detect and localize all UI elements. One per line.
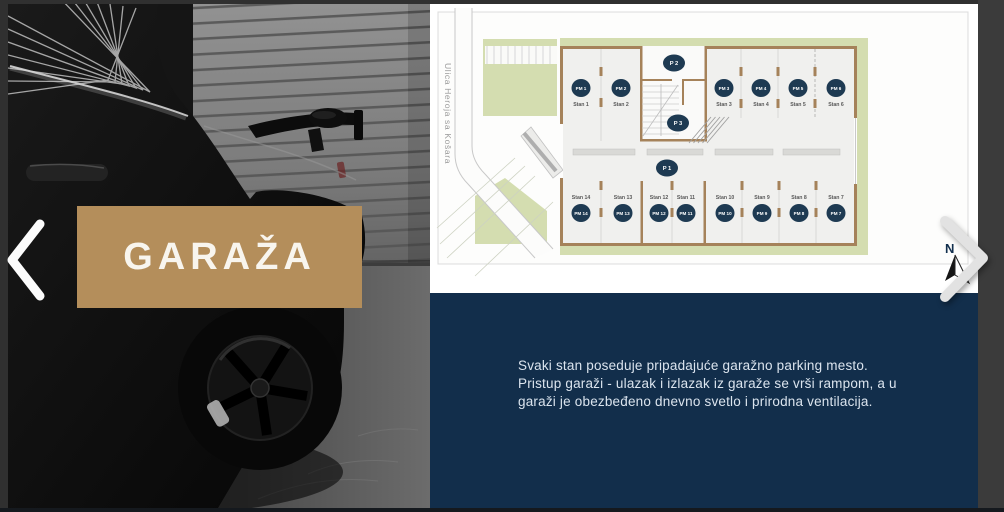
svg-text:Stan 14: Stan 14	[572, 195, 591, 201]
window-edge-bottom	[0, 508, 1004, 512]
svg-text:Stan 3: Stan 3	[716, 102, 732, 108]
svg-text:PM 12: PM 12	[652, 211, 666, 216]
zone-circle-p1: P 1	[656, 160, 678, 177]
prev-slide-button[interactable]	[4, 216, 52, 304]
chevron-left-icon[interactable]	[12, 224, 40, 296]
info-panel: Svaki stan poseduje pripadajuće garažno …	[430, 293, 978, 508]
svg-text:Stan 12: Stan 12	[650, 195, 669, 201]
svg-text:PM 1: PM 1	[576, 86, 587, 91]
svg-text:Stan 8: Stan 8	[791, 195, 807, 201]
north-label: N	[945, 241, 954, 256]
parking-spot: PM 1 Stan 1	[572, 79, 591, 108]
parking-spot: PM 4 Stan 4	[752, 79, 771, 108]
door-handle	[26, 164, 108, 181]
svg-text:PM 8: PM 8	[794, 211, 805, 216]
slide-title: GARAŽA	[123, 236, 316, 279]
north-needle-dark	[945, 255, 955, 281]
svg-text:PM 9: PM 9	[757, 211, 768, 216]
svg-text:PM 2: PM 2	[616, 86, 627, 91]
description-line: Svaki stan poseduje pripadajuće garažno …	[518, 357, 897, 375]
terrace-edge	[855, 118, 856, 184]
side-mirror	[309, 108, 347, 128]
svg-text:PM 3: PM 3	[719, 86, 730, 91]
floor-plan: Ulica Heroja sa Košara	[430, 4, 978, 293]
svg-text:Stan 1: Stan 1	[573, 102, 589, 108]
parking-spot: Stan 9 PM 9	[753, 195, 772, 222]
svg-text:Stan 7: Stan 7	[828, 195, 844, 201]
svg-text:Stan 10: Stan 10	[716, 195, 735, 201]
svg-text:P 1: P 1	[663, 166, 672, 172]
svg-text:Stan 2: Stan 2	[613, 102, 629, 108]
parking-spot: PM 6 Stan 6	[827, 79, 846, 108]
parking-spot: PM 3 Stan 3	[715, 79, 734, 108]
svg-text:Stan 5: Stan 5	[790, 102, 806, 108]
svg-text:PM 7: PM 7	[831, 211, 842, 216]
svg-text:PM 13: PM 13	[616, 211, 630, 216]
garage-description: Svaki stan poseduje pripadajuće garažno …	[518, 357, 897, 410]
street-label: Ulica Heroja sa Košara	[443, 63, 453, 164]
svg-text:PM 14: PM 14	[574, 211, 588, 216]
parking-spot: Stan 8 PM 8	[790, 195, 809, 222]
svg-text:Stan 9: Stan 9	[754, 195, 770, 201]
svg-text:Stan 6: Stan 6	[828, 102, 844, 108]
chevron-right-icon[interactable]	[945, 221, 983, 297]
svg-text:PM 4: PM 4	[756, 86, 767, 91]
slide-garaza: { "slide": { "title": "GARAŽA" }, "navig…	[0, 0, 1004, 512]
svg-text:PM 5: PM 5	[793, 86, 804, 91]
floor-plan-drawing: Ulica Heroja sa Košara	[435, 6, 975, 291]
zone-circle-p3: P 3	[667, 115, 689, 132]
parking-spot: Stan 13 PM 13	[614, 195, 633, 222]
svg-text:PM 11: PM 11	[679, 211, 692, 216]
description-line: Pristup garaži - ulazak i izlazak iz gar…	[518, 375, 897, 393]
svg-text:P 2: P 2	[670, 61, 679, 67]
svg-text:PM 6: PM 6	[831, 86, 842, 91]
next-slide-button[interactable]: N	[923, 203, 1003, 315]
svg-text:Stan 11: Stan 11	[677, 195, 695, 201]
parking-spot: Stan 10 PM 10	[716, 195, 735, 222]
canopy	[485, 46, 557, 64]
content-panel: Ulica Heroja sa Košara	[430, 4, 978, 508]
svg-text:Stan 4: Stan 4	[753, 102, 769, 108]
parking-spot: Stan 11 PM 11	[677, 195, 696, 222]
slide-title-banner: GARAŽA	[77, 206, 362, 308]
description-line: garaži je obezbeđeno dnevno svetlo i pri…	[518, 393, 897, 411]
garage-interior	[563, 49, 854, 243]
svg-text:P 3: P 3	[674, 121, 683, 127]
parking-spot: Stan 14 PM 14	[572, 195, 591, 222]
parking-spot: Stan 12 PM 12	[650, 195, 669, 222]
parking-spot: Stan 7 PM 7	[827, 195, 846, 222]
parking-spot: PM 2 Stan 2	[612, 79, 631, 108]
zone-circle-p2: P 2	[663, 55, 685, 72]
svg-text:Stan 13: Stan 13	[614, 195, 633, 201]
parking-spot: PM 5 Stan 5	[789, 79, 808, 108]
svg-text:PM 10: PM 10	[718, 211, 732, 216]
car-wheel	[178, 306, 342, 470]
